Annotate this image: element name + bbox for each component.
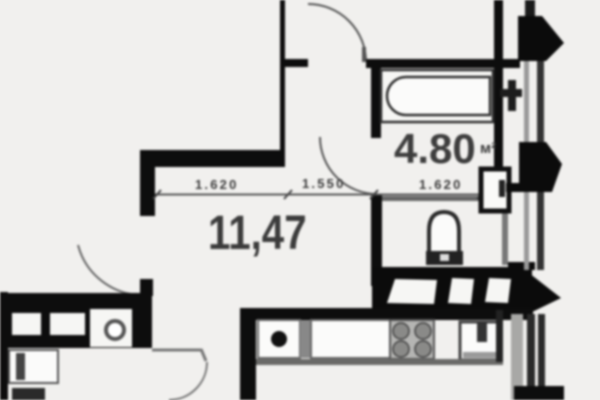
svg-text:1.620: 1.620 xyxy=(195,177,239,192)
svg-text:1.620: 1.620 xyxy=(419,177,463,192)
svg-text:1.550: 1.550 xyxy=(302,176,346,191)
svg-text:м²: м² xyxy=(480,140,496,157)
svg-text:4.80: 4.80 xyxy=(394,125,476,172)
svg-text:11,47: 11,47 xyxy=(208,207,307,260)
